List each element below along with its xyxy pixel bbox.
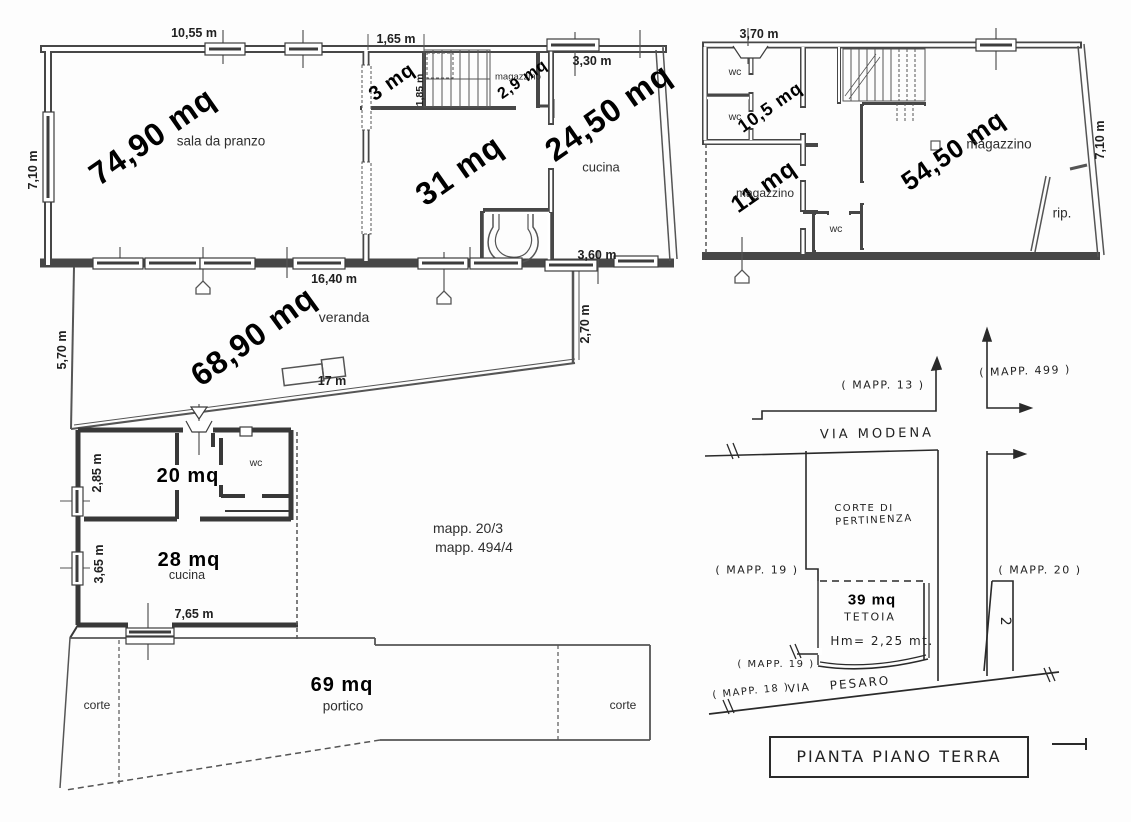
dim-plan1-bottom-window: 3,60 m xyxy=(578,249,617,262)
siteplan-linework xyxy=(705,329,1086,777)
dim-veranda-top: 16,40 m xyxy=(311,273,357,286)
plan2-linework xyxy=(702,28,1104,283)
dim-plan3-kitchen-width: 7,65 m xyxy=(175,608,214,621)
dim-veranda-right: 2,70 m xyxy=(579,305,592,344)
room-label-wc4: wc xyxy=(250,458,263,469)
siteplan-street-bottom-via: VIA xyxy=(787,682,811,695)
door-marker-icon xyxy=(735,270,749,283)
siteplan-mapp-13: ( MAPP. 13 ) xyxy=(841,380,924,391)
siteplan-title: PIANTA PIANO TERRA xyxy=(796,749,1001,765)
room-label-wc1: wc xyxy=(729,67,742,78)
dim-plan1-top-opening: 1,65 m xyxy=(377,33,416,46)
dim-plan3-kitchen-height: 3,65 m xyxy=(93,545,106,584)
siteplan-court-line1: CORTE DI xyxy=(834,504,893,514)
siteplan-mapp-499: ( MAPP. 499 ) xyxy=(979,364,1071,378)
dim-plan1-top-width: 10,55 m xyxy=(171,27,217,40)
room-label-veranda: veranda xyxy=(319,310,370,324)
dim-veranda-bottom: 17 m xyxy=(318,375,347,388)
dim-plan1-left-height: 7,10 m xyxy=(27,151,40,190)
parcel-note-1: mapp. 20/3 xyxy=(433,521,503,535)
dim-plan1-stairs-width: 1,85 m xyxy=(415,74,426,107)
siteplan-street-top: VIA MODENA xyxy=(820,427,934,442)
siteplan-mapp-19-bottom: ( MAPP. 19 ) xyxy=(737,660,814,670)
room-label-main-storage: magazzino xyxy=(966,137,1031,151)
parcel-note-2: mapp. 494/4 xyxy=(435,540,513,554)
dim-plan1-kitchen-window: 3,30 m xyxy=(573,55,612,68)
court-label-left: corte xyxy=(84,699,111,711)
room-label-wc3: wc xyxy=(830,224,843,235)
dim-veranda-left: 5,70 m xyxy=(56,331,69,370)
room-label-storage11: magazzino xyxy=(736,187,794,199)
dim-plan3-room1-height: 2,85 m xyxy=(91,454,104,493)
plan1-linework xyxy=(40,30,677,429)
siteplan-mapp-20: ( MAPP. 20 ) xyxy=(998,565,1081,576)
scanned-floorplan-sheet: 10,55 m 1,65 m 3,30 m 7,10 m 1,85 m 74,9… xyxy=(0,0,1131,822)
plan3-linework xyxy=(60,404,650,790)
room-label-porch: portico xyxy=(323,699,364,713)
siteplan-parcel-2: 2 xyxy=(998,617,1012,627)
dim-plan2-top-window: 3,70 m xyxy=(740,28,779,41)
area-label-room1: 20 mq xyxy=(157,466,220,486)
room-label-rip: rip. xyxy=(1053,206,1072,220)
room-label-dining: sala da pranzo xyxy=(177,134,266,148)
area-label-canopy: 39 mq xyxy=(848,593,896,608)
room-label-kitchen2: cucina xyxy=(169,569,205,582)
area-label-porch: 69 mq xyxy=(311,675,374,695)
siteplan-mapp-19-left: ( MAPP. 19 ) xyxy=(715,565,798,576)
room-label-canopy: TETOIA xyxy=(844,612,896,623)
siteplan-canopy-height: Hm= 2,25 mt. xyxy=(830,635,933,647)
room-label-kitchen1: cucina xyxy=(582,161,620,174)
court-label-right: corte xyxy=(610,699,637,711)
dim-plan2-right-height: 7,10 m xyxy=(1094,121,1107,160)
